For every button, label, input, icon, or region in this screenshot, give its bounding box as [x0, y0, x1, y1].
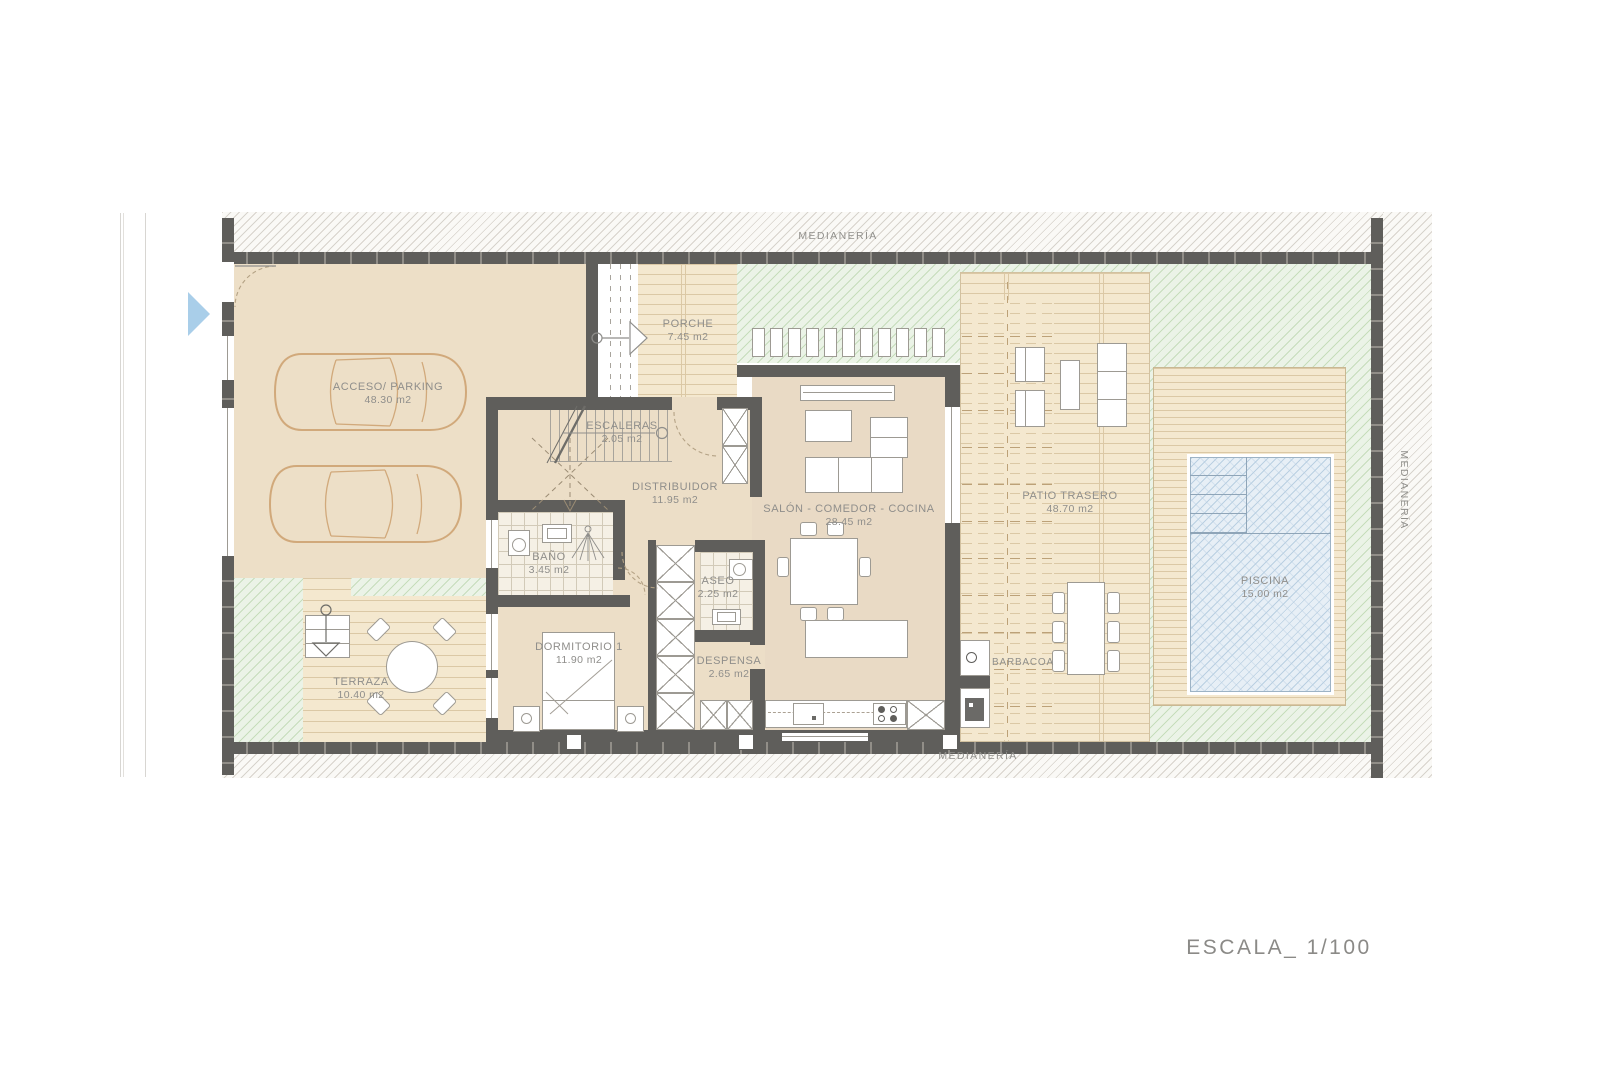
planter — [788, 328, 801, 357]
planter — [752, 328, 765, 357]
bedroom-window-glass — [491, 678, 492, 718]
nightstand-lamp — [521, 713, 532, 724]
wall-bath-top — [486, 500, 625, 512]
kitchen-sink — [793, 703, 824, 725]
bbq-burner — [966, 652, 977, 663]
bedroom-window — [486, 678, 498, 718]
planter — [896, 328, 909, 357]
wall-bedroom-top — [486, 595, 630, 607]
patio-dining-table — [1067, 582, 1105, 675]
boundary-label-right: MEDIANERÍA — [1398, 450, 1410, 529]
room-label-despensa: DESPENSA 2.65 m2 — [697, 655, 762, 681]
bedroom-window — [486, 614, 498, 670]
closet-door — [656, 656, 695, 693]
planter — [770, 328, 783, 357]
closet-door — [656, 545, 695, 582]
room-label-aseo: ASEO 2.25 m2 — [698, 575, 739, 601]
street-line — [123, 213, 124, 777]
closet-door — [656, 619, 695, 656]
street-line — [145, 213, 146, 777]
pantry-wardrobe — [700, 700, 727, 730]
living-glass-door — [945, 407, 960, 523]
wall-hall-living — [750, 397, 762, 497]
boundary-label-bottom: MEDIANERÍA — [938, 750, 1017, 762]
boundary-wall-top — [222, 252, 1383, 264]
wall-pillar — [942, 734, 958, 750]
bath-window-glass — [491, 520, 492, 568]
scale-label: ESCALA_ 1/100 — [1186, 936, 1371, 960]
boundary-wall-bottom — [222, 742, 1383, 754]
planter — [914, 328, 927, 357]
street-line — [120, 213, 121, 777]
terrace-planter-left — [234, 578, 303, 742]
room-label-porche: PORCHE 7.45 m2 — [663, 318, 714, 344]
driveway-gate-opening — [222, 408, 234, 556]
patio-armchair-line — [1025, 391, 1026, 426]
planter — [932, 328, 945, 357]
garage-window-glass — [227, 336, 228, 380]
bath-sink-basin — [547, 528, 567, 539]
bbq-sink — [965, 698, 984, 721]
burner — [878, 706, 885, 713]
boundary-band-bottom — [222, 754, 1432, 778]
planter — [842, 328, 855, 357]
patio-dining-chair — [1107, 650, 1120, 672]
planter — [824, 328, 837, 357]
patio-dining-chair — [1107, 621, 1120, 643]
planter — [878, 328, 891, 357]
driveway-gate-line — [227, 408, 228, 556]
wall-pillar — [566, 734, 582, 750]
room-label-parking: ACCESO/ PARKING 48.30 m2 — [333, 381, 443, 407]
wall-closet-left — [648, 540, 656, 742]
sofa — [805, 457, 903, 493]
floor-plan-page: ACCESO/ PARKING 48.30 m2 PORCHE 7.45 m2 … — [0, 0, 1600, 1065]
room-label-dormitorio: DORMITORIO 1 11.90 m2 — [535, 641, 623, 667]
boundary-label-top: MEDIANERÍA — [798, 230, 877, 242]
burner — [878, 715, 885, 722]
kitchen-island — [805, 620, 908, 658]
dining-chair — [800, 607, 817, 621]
bed-sheet-line — [543, 700, 614, 701]
entrance-door-opening — [222, 262, 234, 302]
burner — [890, 706, 897, 713]
patio-coffee-table — [1060, 360, 1080, 410]
sofa-cushion-line — [838, 458, 839, 492]
bedroom-window-glass — [491, 614, 492, 670]
bbq-divider — [960, 676, 990, 688]
room-label-piscina: PISCINA 15.00 m2 — [1241, 575, 1289, 601]
wall-garage-porch — [586, 264, 598, 397]
terrace-planter-top — [351, 578, 497, 596]
wc-sink-basin — [717, 612, 736, 622]
room-label-terraza: TERRAZA 10.40 m2 — [333, 676, 389, 702]
bath-toilet-bowl — [512, 538, 526, 552]
wall-stairs-top — [486, 397, 672, 410]
sofa-cushion-line — [871, 437, 907, 438]
kitchen-window — [782, 733, 868, 741]
hall-cabinet-door — [722, 446, 748, 484]
bbq-sink-dot — [969, 703, 973, 707]
terrace-table — [386, 641, 438, 693]
planter — [860, 328, 873, 357]
patio-dining-chair — [1107, 592, 1120, 614]
wall-wc-pantry — [695, 630, 765, 642]
kitchen-faucet — [812, 716, 816, 720]
room-label-patio: PATIO TRASERO 48.70 m2 — [1022, 490, 1117, 516]
planter — [806, 328, 819, 357]
closet-door — [656, 582, 695, 619]
bath-window — [486, 520, 498, 568]
room-label-escaleras: ESCALERAS 2.05 m2 — [586, 420, 657, 446]
next-image-arrow-icon[interactable] — [186, 290, 212, 338]
dining-chair — [859, 557, 871, 577]
burner — [890, 715, 897, 722]
sofa-cushion-line — [871, 458, 872, 492]
patio-armchair — [1015, 390, 1045, 427]
wall-living-right-b — [945, 523, 960, 742]
wall-bath-right — [613, 500, 625, 580]
garage-window — [222, 336, 234, 380]
boundary-wall-right — [1371, 218, 1383, 778]
patio-dining-chair — [1052, 621, 1065, 643]
pantry-wardrobe — [727, 700, 753, 730]
pool-steps — [1190, 457, 1247, 534]
patio-armchair — [1015, 347, 1045, 382]
coffee-table — [805, 410, 852, 442]
patio-deck-joint-line — [1007, 282, 1008, 738]
patio-dining-chair — [1052, 592, 1065, 614]
tv-line — [803, 392, 892, 393]
wall-living-right-a — [945, 373, 960, 407]
kitchen-tall-unit — [907, 700, 945, 730]
closet-door — [656, 693, 695, 730]
room-label-salon: SALÓN - COMEDOR - COCINA 28.45 m2 — [763, 503, 934, 529]
room-label-bano: BAÑO 3.45 m2 — [529, 551, 570, 577]
room-label-barbacoa: BARBACOA — [992, 657, 1054, 668]
hall-cabinet-door — [722, 408, 748, 446]
dining-chair — [827, 607, 844, 621]
patio-armchair-line — [1025, 348, 1026, 381]
tv-unit — [800, 385, 895, 401]
dining-chair — [777, 557, 789, 577]
outdoor-shower-tray — [305, 615, 350, 658]
kitchen-window-glass — [782, 736, 868, 737]
wall-pillar — [738, 734, 754, 750]
wall-living-top — [737, 365, 960, 377]
living-glass-door-line — [951, 407, 952, 523]
patio-sofa — [1097, 343, 1127, 427]
wall-wc-top — [695, 540, 765, 552]
room-label-distribuidor: DISTRIBUIDOR 11.95 m2 — [632, 481, 718, 507]
patio-sofa-line — [1098, 399, 1126, 400]
porch-path — [598, 264, 638, 397]
dining-table — [790, 538, 858, 605]
pool-waterline — [1190, 533, 1331, 534]
nightstand-lamp — [625, 713, 636, 724]
wall-house-bottom — [486, 730, 960, 742]
patio-sofa-line — [1098, 371, 1126, 372]
